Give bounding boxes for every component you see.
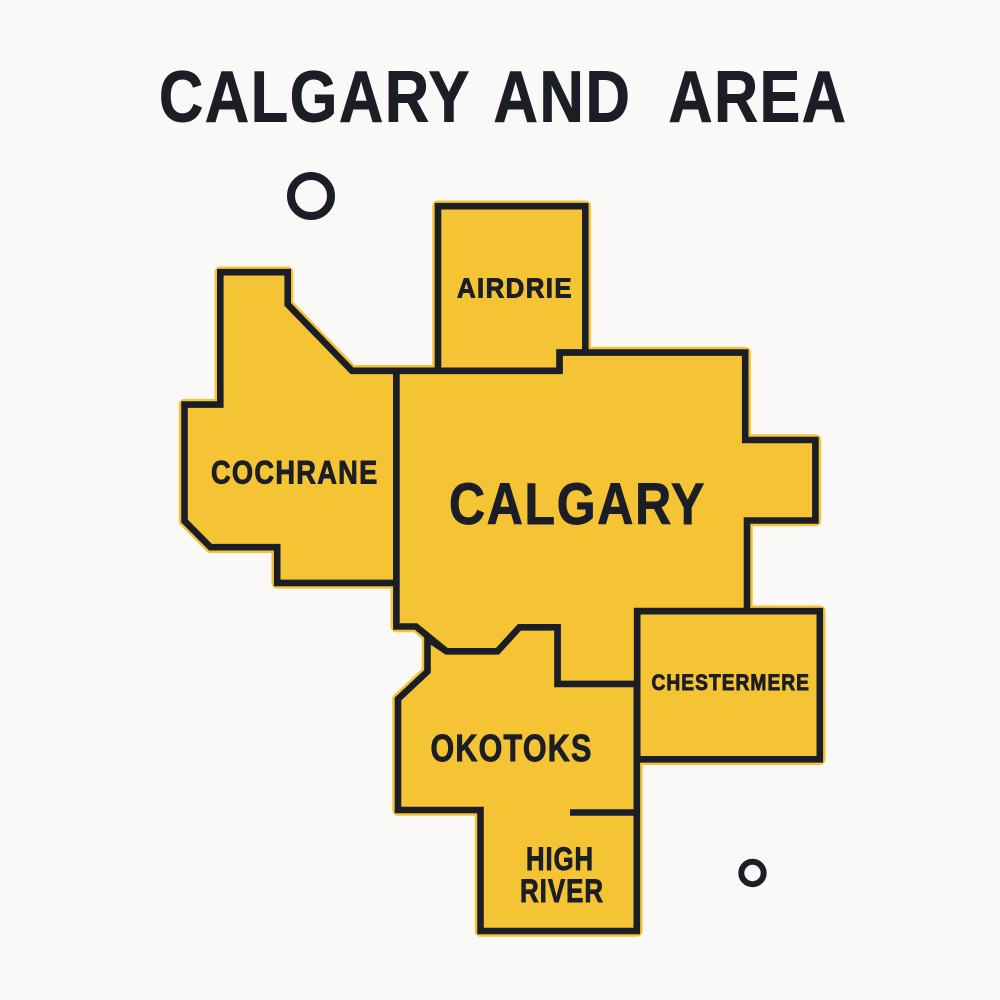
svg-text:AND: AND — [494, 58, 632, 138]
svg-text:AREA: AREA — [669, 58, 848, 138]
svg-text:CALGARY: CALGARY — [449, 472, 706, 537]
svg-text:AIRDRIE: AIRDRIE — [457, 272, 573, 303]
svg-text:CALGARY: CALGARY — [159, 58, 471, 138]
svg-text:RIVER: RIVER — [520, 873, 604, 909]
svg-text:OKOTOKS: OKOTOKS — [431, 728, 593, 770]
svg-text:HIGH: HIGH — [526, 841, 594, 877]
svg-text:CHESTERMERE: CHESTERMERE — [652, 670, 811, 695]
svg-text:COCHRANE: COCHRANE — [211, 454, 379, 490]
